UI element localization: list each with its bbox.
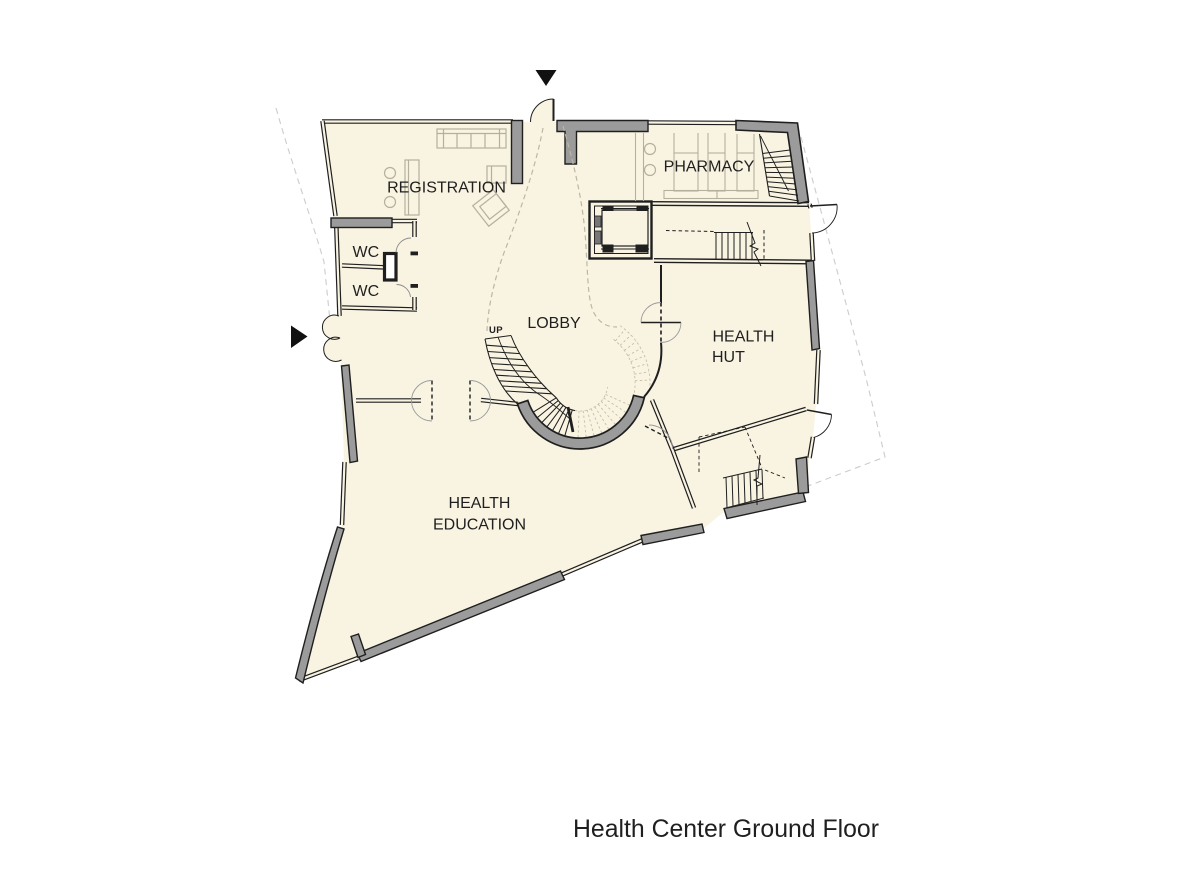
svg-text:UP: UP bbox=[489, 325, 503, 336]
svg-text:Health Center Ground Floor: Health Center Ground Floor bbox=[573, 816, 879, 843]
svg-text:HUT: HUT bbox=[712, 349, 745, 366]
svg-text:REGISTRATION: REGISTRATION bbox=[387, 180, 506, 197]
svg-text:WC: WC bbox=[353, 244, 380, 261]
svg-text:WC: WC bbox=[353, 283, 380, 300]
svg-text:PHARMACY: PHARMACY bbox=[664, 159, 755, 176]
svg-text:HEALTH: HEALTH bbox=[713, 329, 775, 346]
svg-text:HEALTH: HEALTH bbox=[449, 495, 511, 512]
svg-text:LOBBY: LOBBY bbox=[527, 315, 581, 332]
svg-text:EDUCATION: EDUCATION bbox=[433, 517, 526, 534]
